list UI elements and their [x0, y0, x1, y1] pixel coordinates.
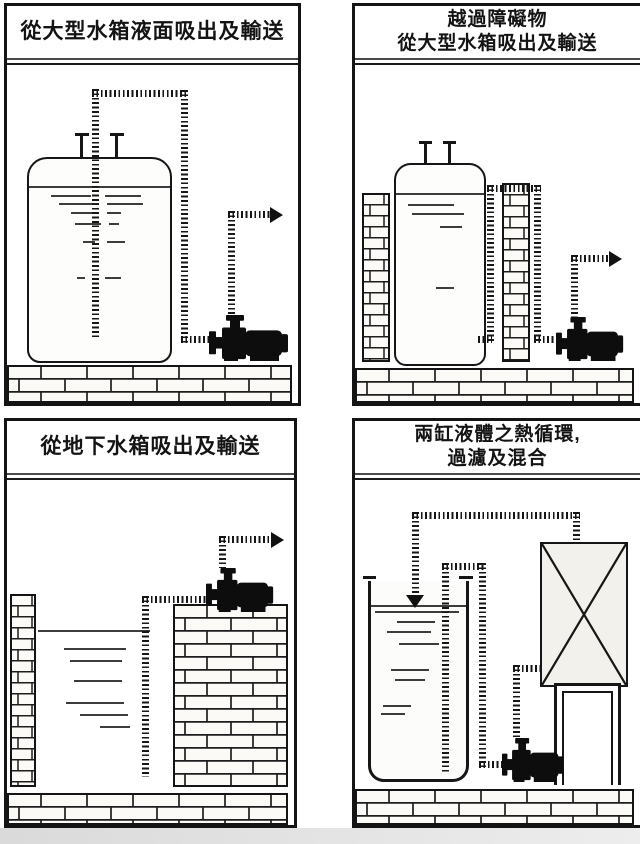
storage-tank [394, 163, 486, 366]
liquid-level-line [396, 193, 484, 195]
panel-title-line: 兩缸液體之熱循環, [414, 423, 580, 447]
liquid-dash [399, 643, 439, 645]
liquid-dash [107, 212, 121, 214]
scan-artifact-band [0, 828, 640, 844]
discharge-pipe-out [571, 255, 611, 262]
liquid-dash [408, 204, 454, 206]
flow-arrow-right-icon [609, 251, 622, 267]
liquid-dash [51, 195, 91, 197]
panel-suction-from-surface: 從大型水箱液面吸出及輸送 [4, 3, 301, 406]
return-pipe-from-box [573, 512, 580, 542]
discharge-pipe-riser [513, 665, 520, 738]
liquid-dash [107, 241, 125, 243]
pump-icon [206, 568, 274, 612]
pump-icon [556, 317, 624, 361]
panel-over-obstacles: 越過障礙物 從大型水箱吸出及輸送 [352, 3, 640, 406]
brick-wall [362, 193, 390, 362]
storage-tank [27, 157, 172, 363]
brick-floor [355, 789, 634, 825]
panel-title-line: 從大型水箱吸出及輸送 [397, 32, 597, 56]
discharge-pipe-out [228, 211, 272, 218]
liquid-dash [105, 195, 141, 197]
liquid-dash [387, 631, 431, 633]
suction-pipe-over-wall [487, 185, 541, 192]
liquid-dash [109, 223, 119, 225]
panel-title-line: 越過障礙物 [447, 8, 547, 32]
panel-title: 越過障礙物 從大型水箱吸出及輸送 [355, 6, 640, 58]
flow-arrow-right-icon [270, 207, 283, 223]
page: 從大型水箱液面吸出及輸送 [0, 0, 640, 844]
pump-icon [209, 315, 289, 361]
filter-box [540, 542, 628, 687]
liquid-dash [395, 679, 425, 681]
title-separator [355, 473, 640, 480]
brick-wall-pit-left [10, 594, 36, 787]
liquid-dash [74, 680, 122, 682]
tank-nozzle [80, 135, 83, 158]
brick-floor [7, 365, 292, 403]
suction-pipe-down-run [181, 90, 188, 343]
liquid-dash [391, 669, 429, 671]
flow-arrow-down-icon [406, 595, 424, 608]
title-separator [7, 473, 294, 480]
discharge-pipe-riser [228, 211, 235, 315]
tank-nozzle [448, 143, 451, 165]
suction-dip-pipe [142, 596, 149, 777]
suction-pipe-to-pump [142, 596, 208, 603]
title-separator [7, 58, 298, 65]
filter-stand-inner [562, 691, 613, 785]
liquid-dash [70, 660, 122, 662]
return-pipe-top-run [412, 512, 580, 519]
panel-underground-tank: 從地下水箱吸出及輸送 [4, 418, 297, 828]
suction-dip-pipe [92, 89, 99, 337]
panel-title: 從地下水箱吸出及輸送 [7, 421, 294, 473]
tank-rim-post [363, 576, 376, 579]
discharge-pipe-riser [571, 255, 578, 317]
tank-nozzle [424, 143, 427, 165]
panel-title-line: 過濾及混合 [447, 447, 547, 471]
liquid-dash [412, 213, 464, 215]
brick-floor [355, 368, 634, 403]
suction-pipe-top-run [92, 90, 188, 97]
liquid-dash [64, 648, 126, 650]
suction-pipe-riser [487, 185, 494, 343]
panel-title: 兩缸液體之熱循環, 過濾及混合 [355, 421, 640, 473]
liquid-level-line [29, 186, 170, 188]
liquid-dash [107, 203, 143, 205]
liquid-dash [440, 226, 462, 228]
filter-x-mark [542, 544, 626, 685]
brick-wall-pit-right [173, 604, 288, 787]
liquid-dash [381, 713, 405, 715]
open-tank [368, 581, 469, 782]
tank-nozzle [115, 135, 118, 158]
title-separator [355, 58, 640, 65]
filter-stand [554, 683, 621, 785]
liquid-dash [383, 705, 411, 707]
panel-title: 從大型水箱液面吸出及輸送 [7, 6, 298, 58]
suction-dip-pipe [442, 563, 449, 772]
liquid-dash [66, 702, 124, 704]
liquid-dash [80, 714, 128, 716]
liquid-dash [436, 287, 454, 289]
tank-rim-post [459, 576, 473, 579]
brick-floor [7, 793, 288, 825]
panel-title-line: 從地下水箱吸出及輸送 [41, 435, 261, 458]
return-pipe-drop [412, 512, 419, 595]
discharge-pipe-out [219, 536, 273, 543]
discharge-pipe-to-box [513, 665, 540, 672]
liquid-dash [100, 726, 130, 728]
liquid-dash [77, 277, 85, 279]
liquid-level-line [38, 630, 150, 632]
brick-wall-obstacle [502, 183, 530, 362]
flow-arrow-right-icon [271, 532, 284, 548]
panel-title-line: 從大型水箱液面吸出及輸送 [21, 20, 285, 43]
panel-two-tank-circulation: 兩缸液體之熱循環, 過濾及混合 [352, 418, 640, 828]
suction-pipe-down-run [479, 563, 486, 768]
suction-pipe-down-run [534, 185, 541, 343]
liquid-dash [397, 621, 435, 623]
pump-icon [502, 738, 564, 782]
liquid-dash [105, 277, 121, 279]
